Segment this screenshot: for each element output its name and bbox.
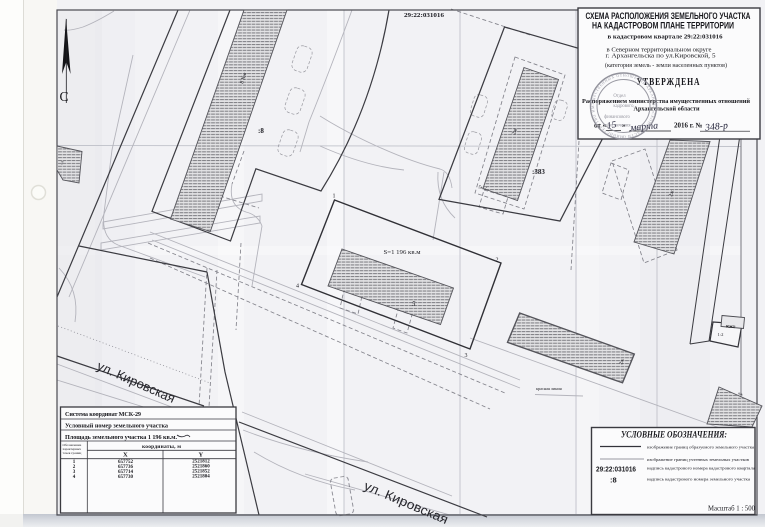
svg-text:кжт: кжт [726,323,736,330]
svg-text:Y: Y [199,451,204,458]
svg-text:657730: 657730 [118,475,134,480]
svg-text:надпись кадастрового номера ка: надпись кадастрового номера кадастрового… [647,466,755,471]
svg-text:(категория земель - земли насе: (категория земель - земли населенных пун… [605,62,727,69]
svg-text:в кадастровом квартале 29:22:0: в кадастровом квартале 29:22:031016 [608,33,724,40]
svg-text:Масштаб 1 : 500: Масштаб 1 : 500 [708,504,755,513]
svg-text:Система координат МСК-29: Система координат МСК-29 [65,411,141,418]
svg-text:Отдел: Отдел [613,94,626,99]
svg-text:4: 4 [296,284,299,290]
svg-text:изображение границ учтенных зе: изображение границ учтенных земельных уч… [647,457,749,462]
svg-text:координаты, м: координаты, м [142,444,181,450]
svg-text:С: С [60,89,69,104]
svg-text:УСЛОВНЫЕ ОБОЗНАЧЕНИЯ:: УСЛОВНЫЕ ОБОЗНАЧЕНИЯ: [621,430,727,440]
svg-text:2521804: 2521804 [192,474,210,479]
svg-text:обеспечения: обеспечения [605,124,631,129]
svg-text:3: 3 [465,353,468,359]
svg-text:2016 г. №: 2016 г. № [674,122,703,130]
svg-text:г. Архангельска по ул.Кировско: г. Архангельска по ул.Кировской, 5 [606,53,716,60]
svg-text:29:22:031016: 29:22:031016 [404,12,445,19]
svg-text:1: 1 [333,194,336,200]
svg-text:надпись кадастрового номера зе: надпись кадастрового номера земельного у… [647,476,750,481]
svg-text:Распоряжением министерства иму: Распоряжением министерства имущественных… [582,98,750,105]
svg-text:Условный номер земельного учас: Условный номер земельного участка [65,423,168,430]
svg-text:НА КАДАСТРОВОМ ПЛАНЕ ТЕРРИТОРИ: НА КАДАСТРОВОМ ПЛАНЕ ТЕРРИТОРИИ [592,20,734,30]
svg-text::8: :8 [610,476,617,485]
svg-text:X: X [123,452,128,459]
svg-text:2: 2 [496,258,499,264]
svg-text:S=1 196 кв.м: S=1 196 кв.м [384,249,421,256]
svg-text:кадрового,: кадрового, [613,104,634,109]
svg-text:5: 5 [412,300,416,308]
svg-text:Площадь земельного участка 1 1: Площадь земельного участка 1 196 кв.м. [65,434,177,441]
svg-text:29:22:031016: 29:22:031016 [596,465,636,474]
svg-text:красная линия: красная линия [536,386,562,391]
svg-text:изображение границ образуемого: изображение границ образуемого земельног… [647,445,754,450]
svg-text:1:2: 1:2 [718,332,725,337]
svg-text:Архангельской области: Архангельской области [634,105,700,112]
svg-text::383: :383 [532,168,545,176]
svg-text:финансового: финансового [604,115,630,120]
svg-text:точек границ: точек границ [63,451,82,455]
svg-text::8: :8 [258,127,264,135]
